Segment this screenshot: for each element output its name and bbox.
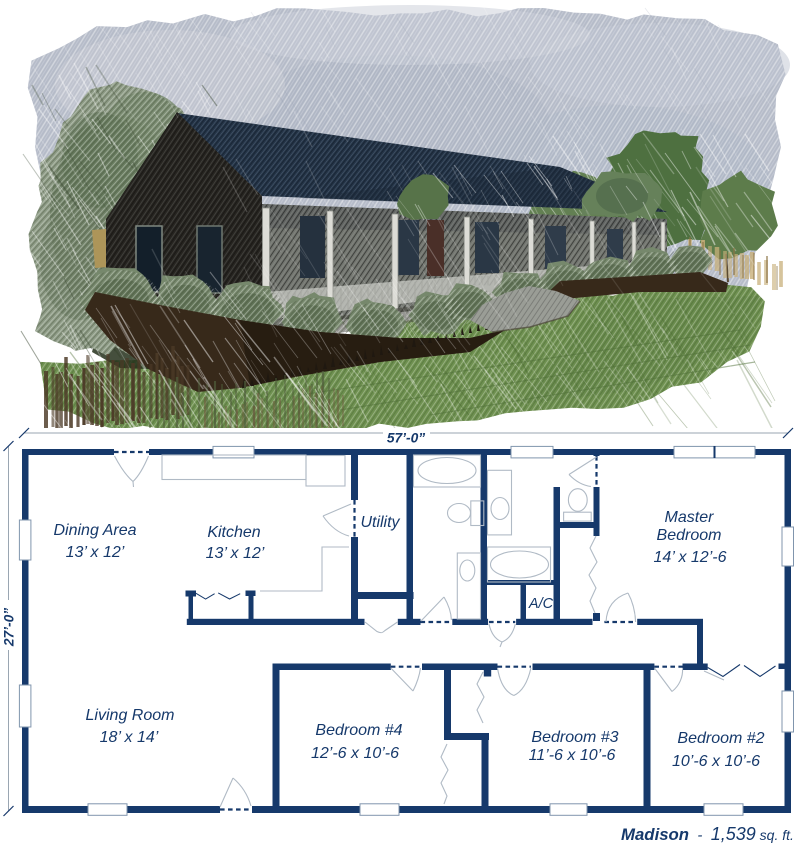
svg-text:13’ x 12’: 13’ x 12’	[206, 545, 265, 562]
svg-text:Bedroom #4: Bedroom #4	[315, 722, 402, 739]
svg-text:Dining Area: Dining Area	[53, 522, 136, 539]
svg-text:13’ x 12’: 13’ x 12’	[66, 544, 125, 561]
svg-text:Master: Master	[665, 509, 715, 526]
svg-text:10’-6 x 10’-6: 10’-6 x 10’-6	[672, 753, 760, 770]
svg-text:Bedroom: Bedroom	[657, 527, 722, 544]
svg-text:Utility: Utility	[360, 514, 400, 531]
svg-text:A/C: A/C	[528, 596, 554, 612]
svg-text:Living Room: Living Room	[86, 707, 175, 724]
svg-text:27’-0”: 27’-0”	[2, 608, 17, 647]
svg-text:12’-6 x 10’-6: 12’-6 x 10’-6	[311, 745, 399, 762]
svg-text:14’ x 12’-6: 14’ x 12’-6	[654, 549, 727, 566]
svg-text:11’-6 x 10’-6: 11’-6 x 10’-6	[529, 747, 616, 764]
svg-text:Madison - 1,539 sq. ft.: Madison - 1,539 sq. ft.	[621, 824, 794, 844]
svg-text:57’-0”: 57’-0”	[387, 431, 425, 446]
svg-text:Bedroom #2: Bedroom #2	[677, 730, 764, 747]
svg-text:Kitchen: Kitchen	[207, 524, 260, 541]
svg-text:Bedroom #3: Bedroom #3	[531, 729, 618, 746]
svg-text:18’ x 14’: 18’ x 14’	[100, 729, 159, 746]
